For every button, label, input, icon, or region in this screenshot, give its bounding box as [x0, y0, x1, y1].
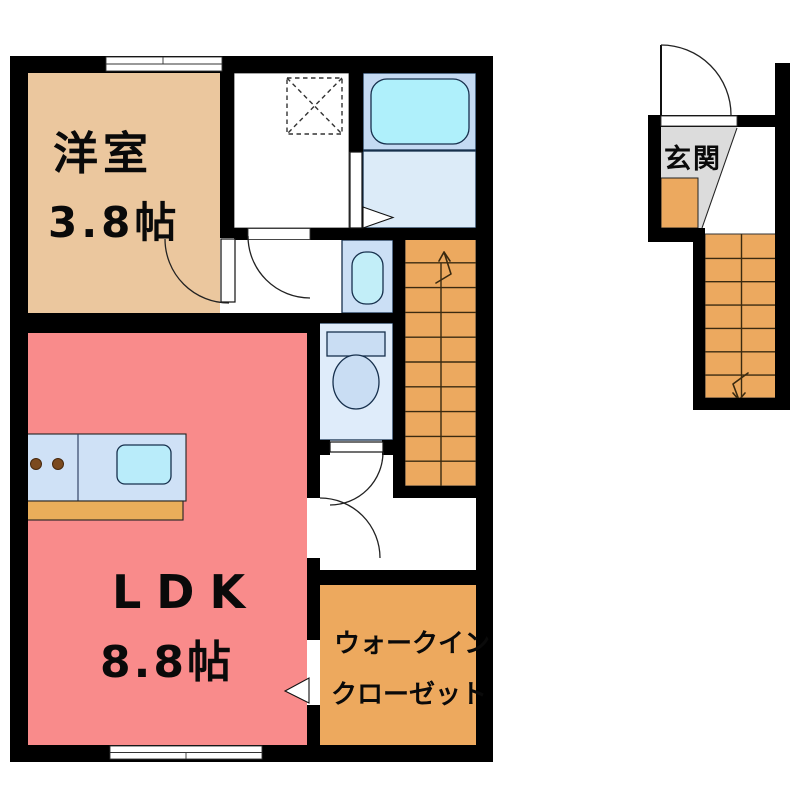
ldk-size: 8.8帖 [100, 637, 234, 688]
toilet-tank-icon [327, 332, 385, 356]
entrance-step [661, 178, 698, 228]
wall-hall-closet-divider [307, 570, 476, 585]
entrance-label: 玄関 [664, 143, 722, 175]
kitchen-sink-icon [117, 445, 171, 484]
washbasin-icon [352, 252, 383, 304]
stove-burner-icon [53, 459, 64, 470]
window-bottom [110, 746, 262, 759]
floor-plan-entrance-section: 玄関 [648, 45, 790, 410]
wall-utility-bath [349, 73, 363, 152]
floor-plan-page: 洋室 3.8帖 LDK 8.8帖 ウォークイン クローゼット 玄関 [0, 0, 800, 800]
wall-utility-bottom [310, 228, 476, 240]
wall-stairwell-left [693, 242, 705, 410]
wall-sink-toilet-divider [320, 313, 405, 323]
toilet-door-leaf [330, 442, 383, 452]
bathtub-icon [371, 79, 469, 144]
western-room-floor [28, 73, 220, 313]
wall-entrance-bottom [648, 228, 705, 242]
entrance-doorway-sill [661, 116, 737, 126]
window-top [106, 57, 222, 71]
wall-toilet-bottom-right [382, 440, 405, 455]
toilet-bowl-icon [333, 355, 379, 409]
kitchen-counter-base [24, 501, 183, 520]
western-room-label: 洋室 [53, 127, 153, 180]
hallway-door-arc [320, 498, 380, 558]
wall-left [10, 56, 28, 762]
ldk-label: LDK [112, 565, 260, 619]
washroom-door-leaf [350, 152, 362, 228]
wall-stairs-bottom [393, 486, 476, 498]
wall-utility-bottom-stub [234, 228, 248, 240]
walk-in-closet-floor [320, 585, 476, 745]
utility-area-floor [234, 73, 349, 228]
wall-ldk-right-lower [307, 705, 320, 745]
wall-top [10, 56, 493, 73]
doorway-utility-sill [248, 229, 310, 240]
wall-entrance-left [648, 115, 661, 242]
western-room-door-leaf [221, 239, 235, 302]
wall-western-room-right [220, 73, 234, 238]
wall-western-room-bottom [10, 313, 320, 333]
floor-plan-drawing: 洋室 3.8帖 LDK 8.8帖 ウォークイン クローゼット 玄関 [0, 0, 800, 800]
walk-in-closet-label-line2: クローゼット [331, 680, 487, 710]
wall-corridor-left-upper [307, 313, 320, 498]
walk-in-closet-label-line1: ウォークイン [334, 629, 490, 659]
toilet-door-arc [330, 452, 383, 505]
western-room-size: 3.8帖 [48, 198, 180, 247]
entrance-door-arc [661, 45, 731, 115]
stove-burner-icon [31, 459, 42, 470]
utility-door-arc [248, 236, 310, 298]
wall-stairwell-bottom [693, 398, 790, 410]
floor-plan-main: 洋室 3.8帖 LDK 8.8帖 ウォークイン クローゼット [10, 56, 493, 762]
wall-toilet-bottom-left [307, 440, 330, 455]
